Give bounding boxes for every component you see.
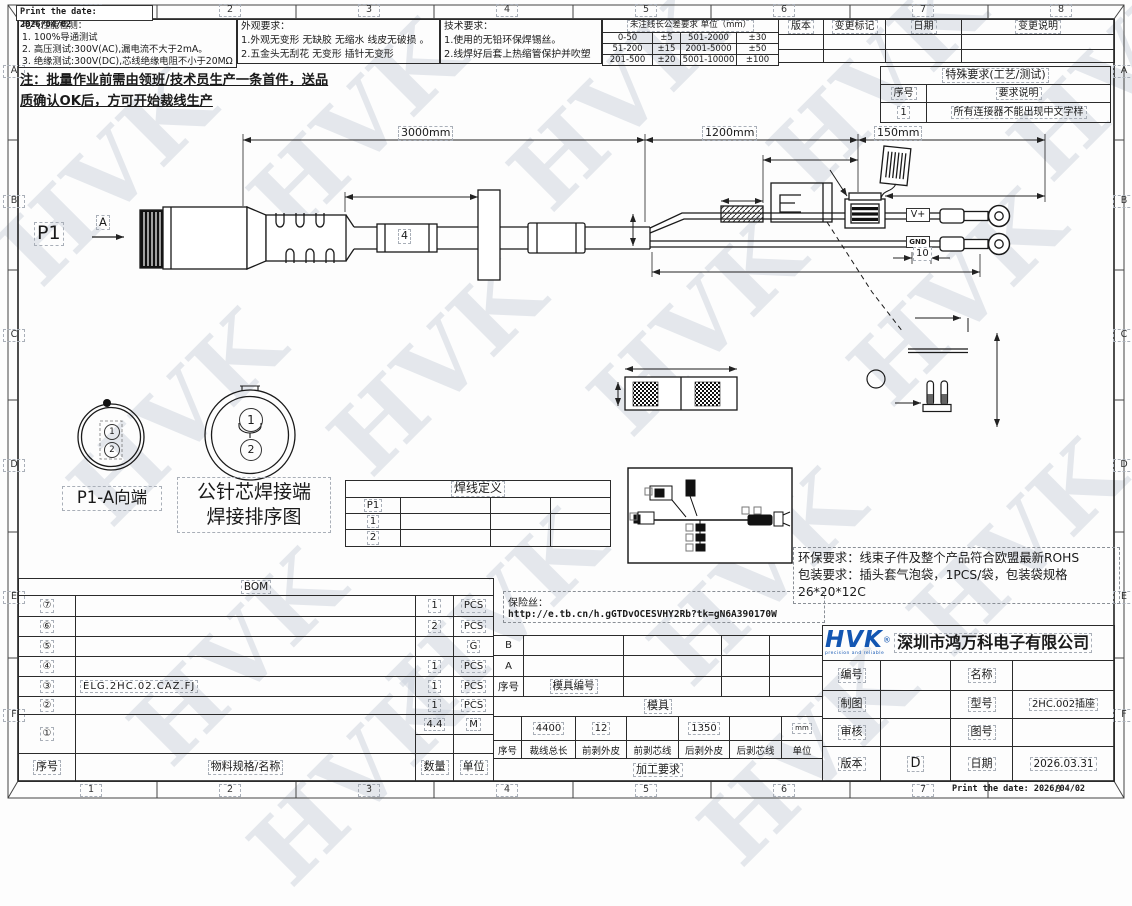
bom-no: ② — [40, 699, 55, 713]
dim-1200mm: 1200mm — [702, 126, 757, 141]
fuse-link-note: 保险丝： http://e.tb.cn/h.gGTDvOCESVHY2Rb?tk… — [503, 591, 825, 623]
grid-row-label: B — [3, 195, 25, 208]
fuse-detail-view — [867, 318, 997, 427]
table-row: ③ELG.2HC.02.CAZ.FJ1PCS — [19, 677, 494, 697]
weld-cell — [491, 514, 551, 530]
table-row: ⑥2PCS — [19, 617, 494, 637]
grid-col-label: 5 — [635, 784, 657, 797]
polarity-dot — [103, 399, 111, 407]
pin-2: 2 — [104, 442, 120, 458]
fuse-url-link[interactable]: http://e.tb.cn/h.gGTDvOCESVHY2Rb?tk=gN6A… — [508, 609, 820, 620]
tolerance-cell: 2001-5000 — [681, 43, 737, 54]
bom-footer: 序号 — [33, 760, 61, 775]
bom-qty — [416, 637, 454, 657]
grid-col-label: 6 — [773, 784, 795, 797]
table-row: ④1PCS — [19, 657, 494, 677]
qr-code — [695, 382, 720, 406]
ring-terminal-bottom — [989, 234, 1010, 255]
mold-row-letter: A — [494, 656, 524, 677]
appearance-item: 2.五金头无刮花 无变形 插针无变形 — [241, 48, 436, 62]
weld-cell — [491, 498, 551, 514]
pin-1: 1 — [239, 408, 263, 432]
hvk-logo: HVK® precision and reliable — [825, 629, 891, 657]
bom-title: BOM — [241, 580, 271, 594]
tolerance-title: 未注线长公差要求 单位（mm） — [627, 20, 754, 32]
bom-unit: PCS — [461, 660, 486, 674]
hvk-watermark: HVK — [567, 197, 827, 457]
bom-no: ③ — [40, 680, 55, 694]
dim-10-label: 10 — [913, 247, 932, 261]
process-unit: mm — [792, 723, 812, 733]
process-header: 序号 — [494, 741, 522, 759]
weld-cell — [401, 514, 491, 530]
bom-no: ⑦ — [40, 599, 55, 613]
revision-cell — [962, 50, 1115, 63]
mold-title: 模具 — [644, 699, 672, 714]
grid-row-label: C — [3, 329, 25, 342]
bom-no: ④ — [40, 660, 55, 674]
hvk-logo-tagline: precision and reliable — [825, 652, 891, 657]
ferrite-bead — [528, 223, 585, 253]
bom-footer: 数量 — [421, 760, 449, 775]
qr-label-drawing — [618, 369, 737, 410]
first-article-line: 质确认OK后，方可开始裁线生产 — [20, 91, 360, 112]
grid-col-label: 4 — [496, 4, 518, 17]
bom-table: BOM ⑦1PCS ⑥2PCS ⑤G ④1PCS ③ELG.2HC.02.CAZ… — [18, 578, 494, 782]
bom-footer: 物料规格/名称 — [208, 760, 284, 775]
field-check-value — [881, 719, 951, 747]
inset-fuse — [748, 515, 772, 525]
field-version-value: D — [907, 756, 923, 773]
registered-mark-icon: ® — [883, 636, 891, 645]
first-article-note: 注：批量作业前需由领班/技术员生产一条首件，送品 质确认OK后，方可开始裁线生产 — [20, 70, 360, 112]
cable-assembly-drawing — [92, 146, 1010, 332]
grid-row-label: D — [1113, 459, 1132, 472]
bom-unit — [454, 735, 494, 754]
section-a-label: A — [96, 215, 110, 230]
field-name-label: 名称 — [968, 668, 996, 683]
bom-spec — [76, 637, 416, 657]
bom-spec — [76, 715, 416, 754]
field-draw-label: 制图 — [838, 697, 866, 712]
field-name-value — [1013, 661, 1115, 691]
table-row: ⑦1PCS — [19, 596, 494, 617]
special-row-no: 1 — [897, 106, 909, 120]
vplus-label: V+ — [906, 208, 930, 222]
bom-spec — [76, 697, 416, 715]
tolerance-cell: 51-200 — [603, 43, 653, 54]
bom-qty: 2 — [428, 620, 440, 634]
bom-spec — [76, 617, 416, 637]
electrical-item: 2. 高压测试:300V(AC),漏电流不大于2mA。 — [22, 44, 233, 56]
bom-no: ⑤ — [40, 640, 55, 654]
clamp — [478, 190, 500, 280]
grid-row-label: B — [1113, 195, 1132, 208]
revision-cell — [962, 35, 1115, 50]
weld-cell — [551, 530, 611, 547]
hvk-logo-text: HVK — [825, 627, 883, 653]
process-title: 加工要求 — [633, 763, 683, 778]
view-big-label-line1: 公针芯焊接端 — [180, 480, 328, 505]
bom-unit: M — [466, 718, 481, 732]
technical-notes: 技术要求： 1.使用的无铅环保焊锡丝。 2.线焊好后套上热缩管保护并吹塑 — [440, 19, 602, 64]
fuse-holder — [845, 199, 885, 228]
hatched-sleeve — [721, 206, 763, 222]
table-row: B — [494, 636, 823, 656]
field-version-label: 版本 — [838, 757, 866, 772]
weld-cell: 1 — [367, 515, 379, 529]
table-row: A — [494, 656, 823, 677]
bom-unit: G — [467, 640, 481, 654]
revision-cell — [779, 35, 824, 50]
process-header: 后剥芯线 — [730, 741, 782, 759]
p1-label: P1 — [34, 222, 64, 246]
process-header: 裁线总长 — [522, 741, 576, 759]
grid-col-label: 5 — [635, 4, 657, 17]
tolerance-cell: ±50 — [737, 43, 779, 54]
process-value: 12 — [592, 722, 611, 736]
strain-relief-boot — [266, 215, 346, 261]
revision-cell — [824, 35, 886, 50]
print-date-bottom: Print the date: 2026/04/02 — [952, 784, 1085, 794]
tolerance-cell: ±15 — [653, 43, 681, 54]
special-title: 特殊要求(工艺/测试) — [942, 68, 1048, 83]
table-row: ①4.4M — [19, 715, 494, 735]
dim-3000mm: 3000mm — [398, 126, 453, 141]
env-line: 环保要求：线束子件及整个产品符合欧盟最新ROHS — [798, 550, 1115, 567]
field-dwgno-label: 图号 — [968, 725, 996, 740]
weld-definition-table: 焊线定义 P1 1 2 — [345, 480, 611, 547]
special-col-desc: 要求说明 — [996, 87, 1042, 101]
process-header: 后剥外皮 — [679, 741, 730, 759]
technical-item: 1.使用的无铅环保焊锡丝。 — [444, 34, 598, 48]
bom-qty: 1 — [428, 699, 440, 713]
tolerance-cell: ±100 — [737, 54, 779, 65]
tolerance-cell: 501-2000 — [681, 32, 737, 43]
callout-box — [771, 183, 832, 222]
grid-col-label: 1 — [80, 784, 102, 797]
revision-header: 版本 — [788, 20, 814, 34]
weld-cell — [551, 514, 611, 530]
print-date-top: Print the date: 2026/04/02 — [16, 5, 153, 21]
bom-spec — [76, 596, 416, 617]
grid-col-label: 7 — [912, 784, 934, 797]
weld-cell — [491, 530, 551, 547]
field-check-label: 审核 — [838, 725, 866, 740]
weld-table-title: 焊线定义 — [451, 481, 505, 497]
dim-150mm: 150mm — [874, 126, 922, 141]
field-model-label: 型号 — [968, 697, 996, 712]
field-dwgno-value — [1013, 719, 1115, 747]
table-row: 4400 12 1350 mm — [494, 717, 823, 741]
grid-col-label: 2 — [219, 4, 241, 17]
bom-spec: ELG.2HC.02.CAZ.FJ — [80, 680, 198, 694]
process-value: 1350 — [688, 722, 719, 736]
field-code-label: 编号 — [838, 668, 866, 683]
bom-qty: 1 — [428, 599, 440, 613]
process-header: 单位 — [782, 741, 823, 759]
bom-unit: PCS — [461, 699, 486, 713]
connector-thread — [140, 210, 163, 268]
revision-header: 变更标记 — [832, 20, 878, 34]
bom-no: ⑥ — [40, 620, 55, 634]
revision-table: 版本 变更标记 日期 变更说明 — [778, 19, 1115, 63]
bom-qty — [416, 735, 454, 754]
grid-col-label: 3 — [358, 784, 380, 797]
process-header: 前剥外皮 — [576, 741, 627, 759]
technical-title: 技术要求： — [444, 20, 598, 34]
grid-col-label: 3 — [358, 4, 380, 17]
appearance-item: 1.外观无变形 无缺胶 无缩水 线皮无破损 。 — [241, 34, 436, 48]
field-date-label: 日期 — [968, 757, 996, 772]
environment-note: 环保要求：线束子件及整个产品符合欧盟最新ROHS 包装要求：插头套气泡袋，1PC… — [793, 547, 1120, 604]
tolerance-cell: 5001-10000 — [681, 54, 737, 65]
env-line: 26*20*12C — [798, 584, 1115, 601]
special-col-no: 序号 — [891, 87, 917, 101]
pin-2: 2 — [240, 439, 262, 461]
bom-qty: 4.4 — [424, 718, 446, 732]
connector-body — [163, 207, 247, 269]
field-code-value — [881, 661, 951, 691]
weld-cell — [401, 498, 491, 514]
weld-cell: P1 — [364, 499, 382, 513]
weld-cell — [551, 498, 611, 514]
bom-unit: PCS — [461, 599, 486, 613]
bom-qty: 1 — [428, 660, 440, 674]
hvk-watermark: HVK — [827, 167, 1087, 427]
tolerance-table: 未注线长公差要求 单位（mm） 0-50±5501-2000±30 51-200… — [602, 19, 779, 66]
process-value: 4400 — [533, 722, 564, 736]
tolerance-cell: 0-50 — [603, 32, 653, 43]
title-block: HVK® precision and reliable 深圳市鸿万科电子有限公司… — [822, 625, 1115, 782]
view-big-label-line2: 焊接排序图 — [180, 505, 328, 530]
grid-row-label: F — [1113, 709, 1132, 722]
tolerance-cell: ±30 — [737, 32, 779, 43]
mold-col-no: 序号 — [494, 677, 524, 697]
hvk-watermark: HVK — [307, 237, 567, 497]
field-draw-value — [881, 691, 951, 719]
revision-cell — [824, 50, 886, 63]
grid-col-label: 8 — [1050, 4, 1072, 17]
electrical-item: 1. 100%导通测试 — [22, 32, 233, 44]
mold-col-id: 模具编号 — [550, 679, 598, 693]
bom-no: ① — [40, 727, 55, 741]
view-small-label: P1-A向端 — [62, 486, 162, 511]
special-requirements-table: 特殊要求(工艺/测试) 序号 要求说明 1 所有连接器不能出现中文字样 — [880, 66, 1111, 123]
bom-footer: 单位 — [460, 760, 488, 775]
appearance-title: 外观要求： — [241, 20, 436, 34]
weld-cell — [401, 530, 491, 547]
revision-cell — [886, 50, 962, 63]
table-row: ⑤G — [19, 637, 494, 657]
tolerance-cell: ±5 — [653, 32, 681, 43]
grid-col-label: 7 — [912, 4, 934, 17]
field-model-value: 2HC.002插座 — [1029, 698, 1098, 712]
company-name: 深圳市鸿万科电子有限公司 — [894, 633, 1092, 653]
bom-spec — [76, 657, 416, 677]
bom-qty: 1 — [428, 680, 440, 694]
qr-code — [633, 382, 658, 406]
electrical-item: 3. 绝缘测试:300V(DC),芯线绝缘电阻不小于20MΩ — [22, 56, 233, 68]
harness-photo-inset — [628, 468, 792, 563]
technical-item: 2.线焊好后套上热缩管保护并吹塑 — [444, 48, 598, 62]
revision-header: 变更说明 — [1015, 20, 1061, 34]
grid-col-label: 2 — [219, 784, 241, 797]
first-article-line: 注：批量作业前需由领班/技术员生产一条首件，送品 — [20, 70, 360, 91]
mold-table: B A 序号模具编号 模具 — [493, 635, 823, 717]
ring-terminal-top — [989, 206, 1010, 227]
grid-col-label: 4 — [496, 784, 518, 797]
grid-row-label: D — [3, 459, 25, 472]
revision-cell — [779, 50, 824, 63]
grid-row-label: A — [1113, 65, 1132, 78]
table-row: ②1PCS — [19, 697, 494, 715]
appearance-notes: 外观要求： 1.外观无变形 无缺胶 无缩水 线皮无破损 。 2.五金头无刮花 无… — [237, 19, 440, 64]
fuse-cap — [880, 146, 911, 186]
special-row-desc: 所有连接器不能出现中文字样 — [951, 106, 1087, 120]
revision-cell — [886, 35, 962, 50]
env-line: 包装要求：插头套气泡袋，1PCS/袋，包装袋规格 — [798, 567, 1115, 584]
grid-row-label: C — [1113, 329, 1132, 342]
revision-header: 日期 — [911, 20, 937, 34]
weld-cell: 2 — [367, 531, 379, 545]
pin-1: 1 — [104, 424, 120, 440]
marker-4-label: 4 — [398, 229, 411, 244]
view-big-label: 公针芯焊接端 焊接排序图 — [177, 477, 331, 533]
process-table: 4400 12 1350 mm 序号 裁线总长 前剥外皮 前剥芯线 后剥外皮 后… — [493, 716, 823, 782]
tolerance-cell: 201-500 — [603, 54, 653, 65]
process-header: 前剥芯线 — [627, 741, 679, 759]
tolerance-cell: ±20 — [653, 54, 681, 65]
bom-unit: PCS — [461, 680, 486, 694]
grid-col-label: 6 — [773, 4, 795, 17]
fuse-label: 保险丝： — [508, 594, 820, 609]
mold-row-letter: B — [494, 636, 524, 656]
bom-unit: PCS — [461, 620, 486, 634]
field-date-value: 2026.03.31 — [1030, 757, 1096, 771]
